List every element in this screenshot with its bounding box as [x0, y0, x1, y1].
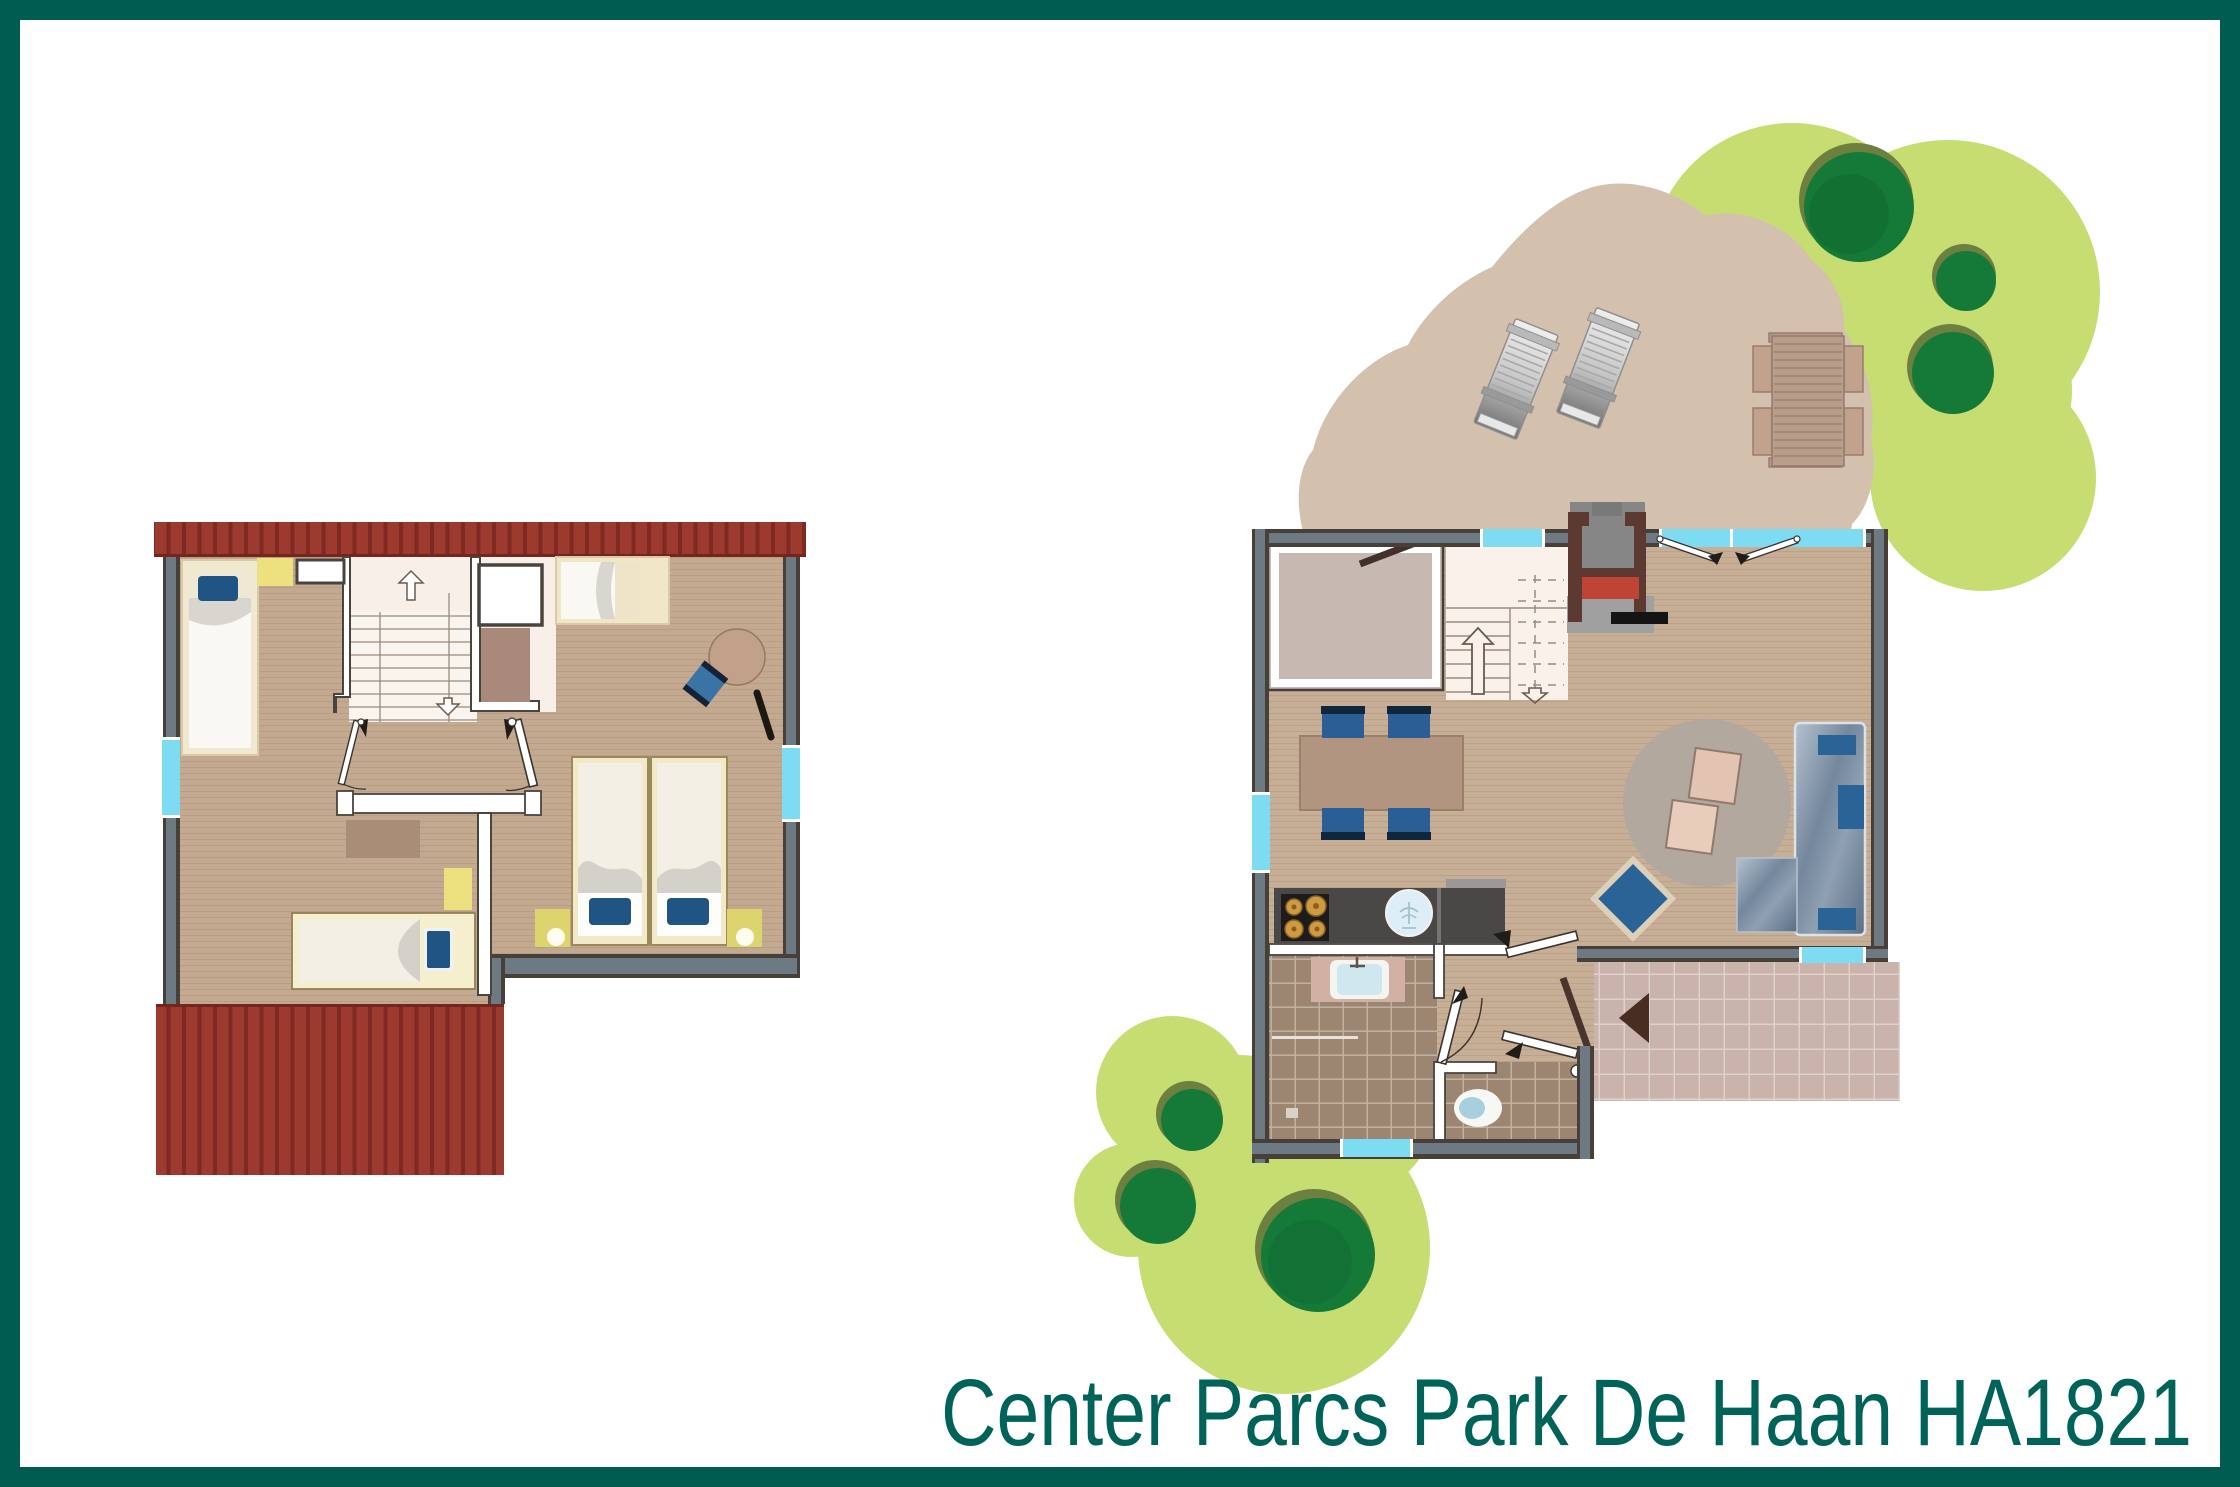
svg-text:Center Parcs Park De Haan HA18: Center Parcs Park De Haan HA1821	[941, 1360, 2192, 1466]
